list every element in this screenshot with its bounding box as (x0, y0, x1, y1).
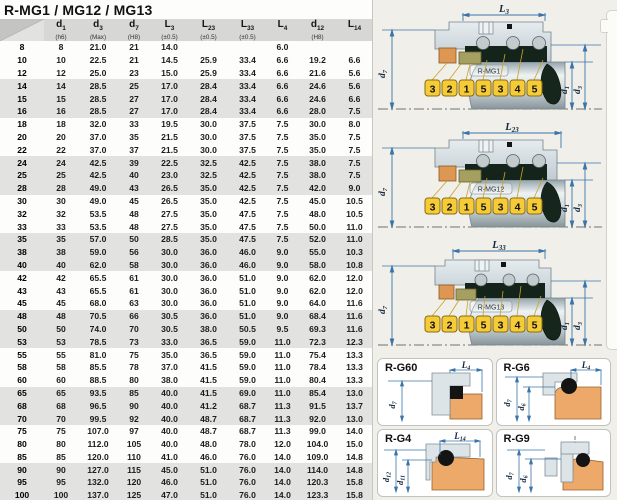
cell: 14.0 (267, 489, 298, 500)
table-row: 555581.07535.036.559.011.075.413.3 (0, 348, 372, 361)
cell: 30.0 (189, 143, 228, 156)
cell: 30.0 (150, 271, 189, 284)
row-label: 8 (0, 41, 44, 54)
table-row: 424265.56130.036.051.09.062.012.0 (0, 271, 372, 284)
top-dim-label: L4 (580, 361, 590, 372)
cell: 59.0 (228, 335, 267, 348)
cell: 59.0 (228, 361, 267, 374)
row-label: 14 (0, 79, 44, 92)
row-label: 80 (0, 438, 44, 451)
cell: 41.0 (150, 451, 189, 464)
cell: 10.5 (337, 207, 372, 220)
cell: 127.0 (78, 463, 118, 476)
cell: 30.0 (189, 118, 228, 131)
cell: 15.0 (150, 67, 189, 80)
cell: 15.0 (337, 438, 372, 451)
cell: 112.0 (78, 438, 118, 451)
o-ring (561, 378, 577, 394)
cell: 109.0 (298, 451, 337, 464)
cell: 100 (44, 489, 78, 500)
cell: 45 (118, 195, 150, 208)
cell: 120.0 (78, 451, 118, 464)
cell: 40 (118, 169, 150, 182)
cell: 28.0 (298, 105, 337, 118)
dim-a-label: d7 (387, 400, 399, 408)
cell: 9.0 (337, 182, 372, 195)
cell: 46.0 (150, 476, 189, 489)
cell: 28.4 (189, 92, 228, 105)
svg-text:3: 3 (498, 202, 504, 214)
cell: 45.0 (298, 195, 337, 208)
cell: 51.0 (189, 489, 228, 500)
left-dim-label: d7 (378, 69, 389, 78)
svg-text:5: 5 (481, 202, 487, 214)
cell: 24.6 (298, 92, 337, 105)
cell: 21 (118, 41, 150, 54)
cell: 33 (44, 220, 78, 233)
table-row: 8080112.010540.048.078.012.0104.015.0 (0, 438, 372, 451)
cell: 85.5 (78, 361, 118, 374)
panel-gland (561, 442, 589, 454)
cell: 47.0 (150, 489, 189, 500)
spring-coil (477, 37, 490, 50)
top-dim-label: L3 (498, 4, 509, 16)
cell: 76.0 (228, 489, 267, 500)
cell: 40.0 (150, 425, 189, 438)
cell: 28.4 (189, 79, 228, 92)
svg-text:1: 1 (464, 202, 470, 214)
cell: 21.5 (150, 131, 189, 144)
cell: 62.0 (298, 284, 337, 297)
dimension-table: d1(h6) d3(Max) d7(H8) L3(±0.5) L23(±0.5)… (0, 19, 372, 500)
cell: 32 (44, 207, 78, 220)
callout-chips: 3 2 1 5 3 4 5 (425, 80, 542, 96)
datasheet-table-section: R-MG1 / MG12 / MG13 d1(h6) d3(Max) d7(H8… (0, 0, 373, 500)
cell: 35.0 (189, 195, 228, 208)
cell: 10.5 (337, 195, 372, 208)
dim-a-label: d7 (504, 471, 516, 479)
table-row: 282849.04326.535.042.57.542.09.0 (0, 182, 372, 195)
cell: 104.0 (298, 438, 337, 451)
cell: 25 (118, 79, 150, 92)
col-header-L14: L14 (337, 19, 372, 41)
col-header-L23: L23(±0.5) (189, 19, 228, 41)
svg-text:5: 5 (481, 84, 487, 96)
cell: 11.6 (337, 310, 372, 323)
cell: 64.0 (298, 297, 337, 310)
cell: 10.8 (337, 259, 372, 272)
drive-pin (507, 24, 512, 29)
cell: 80.4 (298, 374, 337, 387)
cell: 28.5 (150, 233, 189, 246)
cell: 30.0 (298, 118, 337, 131)
cell: 32.5 (189, 169, 228, 182)
row-label: 45 (0, 297, 44, 310)
cell: 12.0 (267, 438, 298, 451)
row-label: 55 (0, 348, 44, 361)
cell: 47.5 (228, 220, 267, 233)
cell: 85 (118, 387, 150, 400)
seal-face (459, 170, 481, 182)
dim-b-label: d6 (518, 475, 530, 482)
detail-panels-grid: R-G60 L4 d7 R-G6 (377, 358, 611, 497)
cell: 33.4 (228, 105, 267, 118)
cell: 123.3 (298, 489, 337, 500)
col-header-d7: d7(H8) (118, 19, 150, 41)
cell (337, 41, 372, 54)
cell: 75 (118, 348, 150, 361)
table-row: 656593.58540.041.569.011.085.413.0 (0, 387, 372, 400)
cell: 8 (44, 41, 78, 54)
cell: 48.0 (298, 207, 337, 220)
table-row: 585885.57837.041.559.011.078.413.3 (0, 361, 372, 374)
cell: 120 (118, 476, 150, 489)
cell: 35 (118, 131, 150, 144)
cell: 28.4 (189, 105, 228, 118)
cell: 28.5 (78, 92, 118, 105)
table-row: 8821.02114.06.0 (0, 41, 372, 54)
cell: 35.0 (298, 131, 337, 144)
cell: 46.0 (189, 451, 228, 464)
cell: 48 (118, 207, 150, 220)
cell: 28.5 (78, 105, 118, 118)
row-label: 70 (0, 412, 44, 425)
cell: 40.0 (150, 438, 189, 451)
table-row: 7575107.09740.048.768.711.399.014.0 (0, 425, 372, 438)
cell: 22.5 (150, 156, 189, 169)
left-dim-label: d7 (378, 305, 389, 314)
cell: 11.6 (337, 323, 372, 336)
cell: 16 (44, 105, 78, 118)
table-row: 151528.52717.028.433.46.624.66.6 (0, 92, 372, 105)
cell: 53.5 (78, 207, 118, 220)
cell: 68.4 (298, 310, 337, 323)
page-title: R-MG1 / MG12 / MG13 (0, 0, 372, 19)
right-dim2-label: d3 (573, 85, 584, 94)
svg-text:5: 5 (532, 320, 538, 332)
cell: 99.5 (78, 412, 118, 425)
cell: 13.3 (337, 361, 372, 374)
cell: 33.4 (228, 92, 267, 105)
cell: 70.5 (78, 310, 118, 323)
col-header-L3: L3(±0.5) (150, 19, 189, 41)
cell: 14 (44, 79, 78, 92)
cell: 35.0 (189, 207, 228, 220)
dim-b-label: d6 (516, 403, 528, 410)
cell: 81.0 (78, 348, 118, 361)
spring-coil (527, 274, 539, 286)
cell: 37.0 (150, 361, 189, 374)
cell: 75.4 (298, 348, 337, 361)
dim-a-label: d7 (502, 398, 514, 406)
cell: 65 (44, 387, 78, 400)
cell: 7.5 (337, 169, 372, 182)
col-header-L33: L33(±0.5) (228, 19, 267, 41)
table-row: 121225.02315.025.933.46.621.65.6 (0, 67, 372, 80)
row-label: 58 (0, 361, 44, 374)
cell: 38 (44, 246, 78, 259)
panel-black-wedge (450, 386, 463, 399)
cell: 22.5 (78, 54, 118, 67)
cell: 9.0 (267, 246, 298, 259)
cell: 28.5 (78, 79, 118, 92)
cell: 42.5 (228, 195, 267, 208)
cell: 78.4 (298, 361, 337, 374)
svg-text:4: 4 (515, 202, 521, 214)
spring-coil (507, 37, 520, 50)
cell: 115 (118, 463, 150, 476)
row-label: 53 (0, 335, 44, 348)
cell: 85.4 (298, 387, 337, 400)
cell: 11.0 (267, 387, 298, 400)
cell: 32.5 (189, 156, 228, 169)
cell: 55 (44, 348, 78, 361)
table-row: 161628.52717.028.433.46.628.07.5 (0, 105, 372, 118)
row-label: 35 (0, 233, 44, 246)
cell: 46.0 (228, 246, 267, 259)
col-header-d12: d12(H8) (298, 19, 337, 41)
cell: 25.9 (189, 67, 228, 80)
cell: 125 (118, 489, 150, 500)
cell: 35 (44, 233, 78, 246)
table-header-row: d1(h6) d3(Max) d7(H8) L3(±0.5) L23(±0.5)… (0, 19, 372, 41)
panel-rg6: R-G6 L4 d7 d6 (496, 358, 612, 426)
cell: 26.5 (150, 195, 189, 208)
cell: 45 (44, 297, 78, 310)
cell: 11.0 (267, 348, 298, 361)
cell: 51.0 (228, 284, 267, 297)
cell: 61 (118, 271, 150, 284)
row-label: 16 (0, 105, 44, 118)
row-label: 100 (0, 489, 44, 500)
cell: 7.5 (267, 195, 298, 208)
cell: 48.0 (189, 438, 228, 451)
row-label: 85 (0, 451, 44, 464)
cell: 85 (44, 451, 78, 464)
cell: 33.4 (228, 54, 267, 67)
cell: 7.5 (267, 118, 298, 131)
table-row: 303049.04526.535.042.57.545.010.5 (0, 195, 372, 208)
cell: 12.0 (337, 284, 372, 297)
cell: 53 (44, 335, 78, 348)
table-row: 434365.56130.036.051.09.062.012.0 (0, 284, 372, 297)
cell: 50 (118, 233, 150, 246)
cell: 78.0 (228, 438, 267, 451)
cell: 65.5 (78, 271, 118, 284)
cell: 19.2 (298, 54, 337, 67)
cell: 9.5 (267, 323, 298, 336)
cell: 80 (44, 438, 78, 451)
svg-text:5: 5 (532, 84, 538, 96)
row-label: 32 (0, 207, 44, 220)
row-label: 10 (0, 54, 44, 67)
cell: 35.0 (189, 233, 228, 246)
cell: 42.5 (228, 182, 267, 195)
seat-ring (439, 285, 454, 299)
cell: 132.0 (78, 476, 118, 489)
cell: 107.0 (78, 425, 118, 438)
cell: 48.7 (189, 425, 228, 438)
cell: 35.0 (150, 348, 189, 361)
cell: 21.0 (78, 41, 118, 54)
cell: 114.0 (298, 463, 337, 476)
cell: 14.0 (337, 425, 372, 438)
row-label: 48 (0, 310, 44, 323)
svg-text:2: 2 (447, 320, 453, 332)
cell: 6.6 (337, 54, 372, 67)
cell: 9.0 (267, 310, 298, 323)
callout-chips: 3 2 1 5 3 4 5 (425, 316, 542, 332)
cell: 47.5 (228, 207, 267, 220)
cell: 32.0 (78, 118, 118, 131)
cell: 40.0 (150, 412, 189, 425)
cell: 66 (118, 310, 150, 323)
cell: 96.5 (78, 399, 118, 412)
cell: 21.5 (150, 143, 189, 156)
cell: 41.5 (189, 361, 228, 374)
cell: 76.0 (228, 463, 267, 476)
cell: 68.7 (228, 399, 267, 412)
cell: 37.0 (78, 143, 118, 156)
cell: 33.4 (228, 79, 267, 92)
cell: 9.0 (267, 271, 298, 284)
cell: 13.7 (337, 399, 372, 412)
spring-coil (507, 155, 520, 168)
table-row: 454568.06330.036.051.09.064.011.6 (0, 297, 372, 310)
table-row: 141428.52517.028.433.46.624.65.6 (0, 79, 372, 92)
cell: 42 (44, 271, 78, 284)
svg-text:3: 3 (430, 84, 436, 96)
cell: 63 (118, 297, 150, 310)
cell: 73 (118, 335, 150, 348)
cell: 70 (44, 412, 78, 425)
cell: 36.0 (189, 259, 228, 272)
cell: 48.7 (189, 412, 228, 425)
table-row: 505074.07030.538.050.59.569.311.6 (0, 323, 372, 336)
cell: 22 (44, 143, 78, 156)
cell: 51.0 (228, 297, 267, 310)
cell: 11.0 (337, 220, 372, 233)
cell: 37 (118, 143, 150, 156)
cell: 33 (118, 118, 150, 131)
cell: 51.0 (189, 463, 228, 476)
table-row: 252542.54023.032.542.57.538.07.5 (0, 169, 372, 182)
table-row: 202037.03521.530.037.57.535.07.5 (0, 131, 372, 144)
cell: 59.0 (228, 348, 267, 361)
cell: 30.5 (150, 323, 189, 336)
cell: 12.3 (337, 335, 372, 348)
cell: 80 (118, 374, 150, 387)
cell: 37.5 (228, 143, 267, 156)
cell: 20 (44, 131, 78, 144)
cell: 17.0 (150, 92, 189, 105)
cell: 53.5 (78, 220, 118, 233)
seal-diagram-rmg13: R-MG13 3 2 1 5 3 4 5 (374, 238, 606, 355)
top-dim-label: L14 (453, 432, 466, 443)
cell: 30.0 (189, 131, 228, 144)
cell: 24.6 (298, 79, 337, 92)
cell: 10.3 (337, 246, 372, 259)
cell: 68 (44, 399, 78, 412)
seal-face (459, 52, 481, 64)
table-row: 9595132.012046.051.076.014.0120.315.8 (0, 476, 372, 489)
row-label: 24 (0, 156, 44, 169)
cell: 11.3 (267, 412, 298, 425)
cell: 97 (118, 425, 150, 438)
cell: 23.0 (150, 169, 189, 182)
cell: 48 (118, 220, 150, 233)
cell: 37.5 (228, 131, 267, 144)
cell: 99.0 (298, 425, 337, 438)
seal-diagram-rmg12: R-MG12 3 2 1 5 3 4 5 (374, 120, 606, 237)
row-label: 20 (0, 131, 44, 144)
cell: 7.5 (267, 131, 298, 144)
cell: 51.0 (228, 271, 267, 284)
cell: 88.5 (78, 374, 118, 387)
cell: 5.6 (337, 67, 372, 80)
row-label: 68 (0, 399, 44, 412)
cell: 137.0 (78, 489, 118, 500)
cell: 50 (44, 323, 78, 336)
cell: 30.0 (150, 246, 189, 259)
cell: 6.6 (267, 92, 298, 105)
cell: 13.3 (337, 374, 372, 387)
cell (298, 41, 337, 54)
svg-text:3: 3 (498, 320, 504, 332)
cell: 38.0 (150, 374, 189, 387)
svg-text:1: 1 (464, 320, 470, 332)
setscrew-slot (479, 140, 493, 152)
setscrew-slot (479, 22, 493, 34)
cell: 52.0 (298, 233, 337, 246)
cell: 58.0 (298, 259, 337, 272)
cell: 105 (118, 438, 150, 451)
cell: 40 (44, 259, 78, 272)
table-row: 9090127.011545.051.076.014.0114.014.8 (0, 463, 372, 476)
cell: 14.5 (150, 54, 189, 67)
row-label: 30 (0, 195, 44, 208)
panel-rg60: R-G60 L4 d7 (377, 358, 493, 426)
callout-chips: 3 2 1 5 3 4 5 (425, 198, 542, 214)
cell (189, 41, 228, 54)
table-row: 101022.52114.525.933.46.619.26.6 (0, 54, 372, 67)
cell: 51.0 (189, 476, 228, 489)
cell: 6.0 (267, 41, 298, 54)
cell: 6.6 (337, 92, 372, 105)
svg-text:3: 3 (498, 84, 504, 96)
corner-cell (0, 19, 44, 41)
cell: 61 (118, 284, 150, 297)
cell: 68.7 (228, 412, 267, 425)
cell: 75 (44, 425, 78, 438)
cell: 48 (44, 310, 78, 323)
cell: 11.3 (267, 399, 298, 412)
row-label: 90 (0, 463, 44, 476)
cell: 33.0 (150, 335, 189, 348)
row-label: 18 (0, 118, 44, 131)
cell: 42.0 (298, 182, 337, 195)
row-label: 65 (0, 387, 44, 400)
cell: 13.0 (337, 387, 372, 400)
cell: 6.6 (267, 79, 298, 92)
cell: 68.7 (228, 425, 267, 438)
cell: 15 (44, 92, 78, 105)
cell: 59.0 (78, 246, 118, 259)
cell: 30.0 (150, 284, 189, 297)
cell: 14.0 (267, 463, 298, 476)
cell: 25.9 (189, 54, 228, 67)
table-row: 8585120.011041.046.076.014.0109.014.8 (0, 451, 372, 464)
